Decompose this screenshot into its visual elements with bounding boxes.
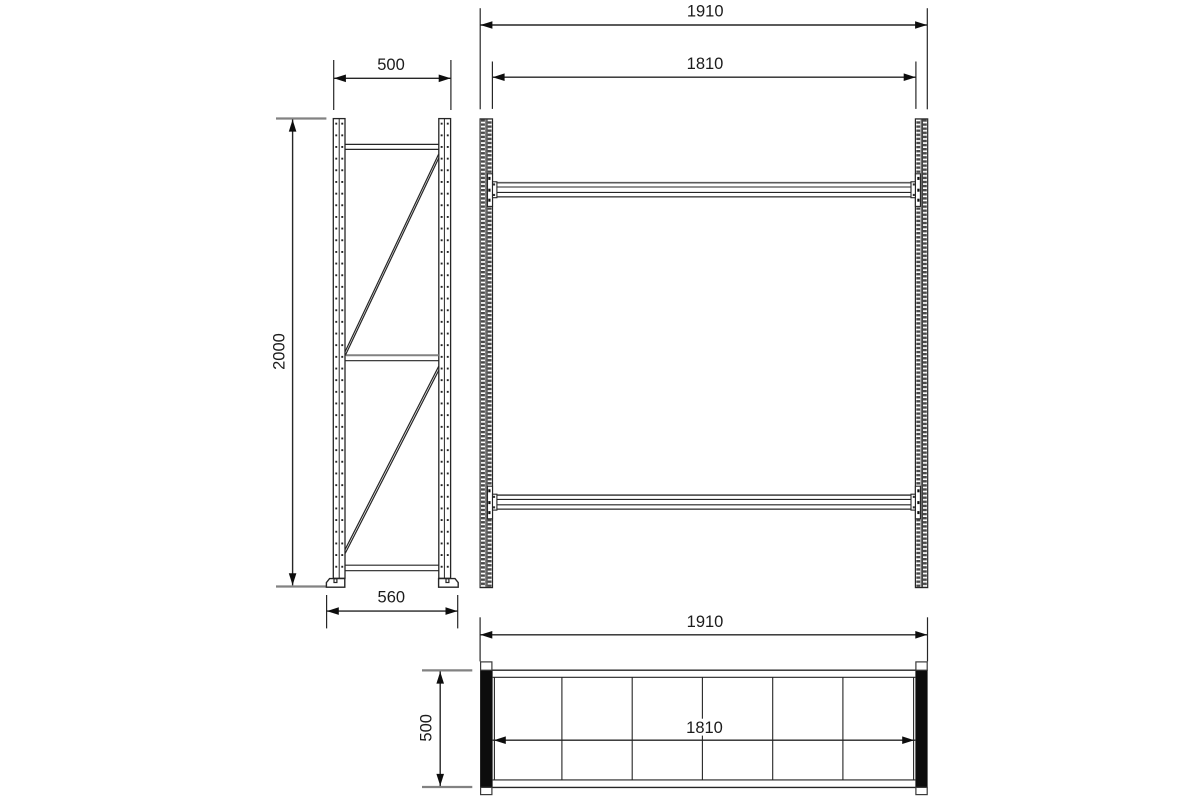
svg-text:2000: 2000 xyxy=(270,333,288,370)
svg-text:1810: 1810 xyxy=(687,55,724,73)
svg-text:500: 500 xyxy=(417,714,435,742)
svg-text:1910: 1910 xyxy=(687,3,724,21)
svg-text:1810: 1810 xyxy=(686,719,723,737)
svg-text:500: 500 xyxy=(377,56,405,74)
svg-text:560: 560 xyxy=(378,589,406,607)
svg-text:1910: 1910 xyxy=(687,613,724,631)
